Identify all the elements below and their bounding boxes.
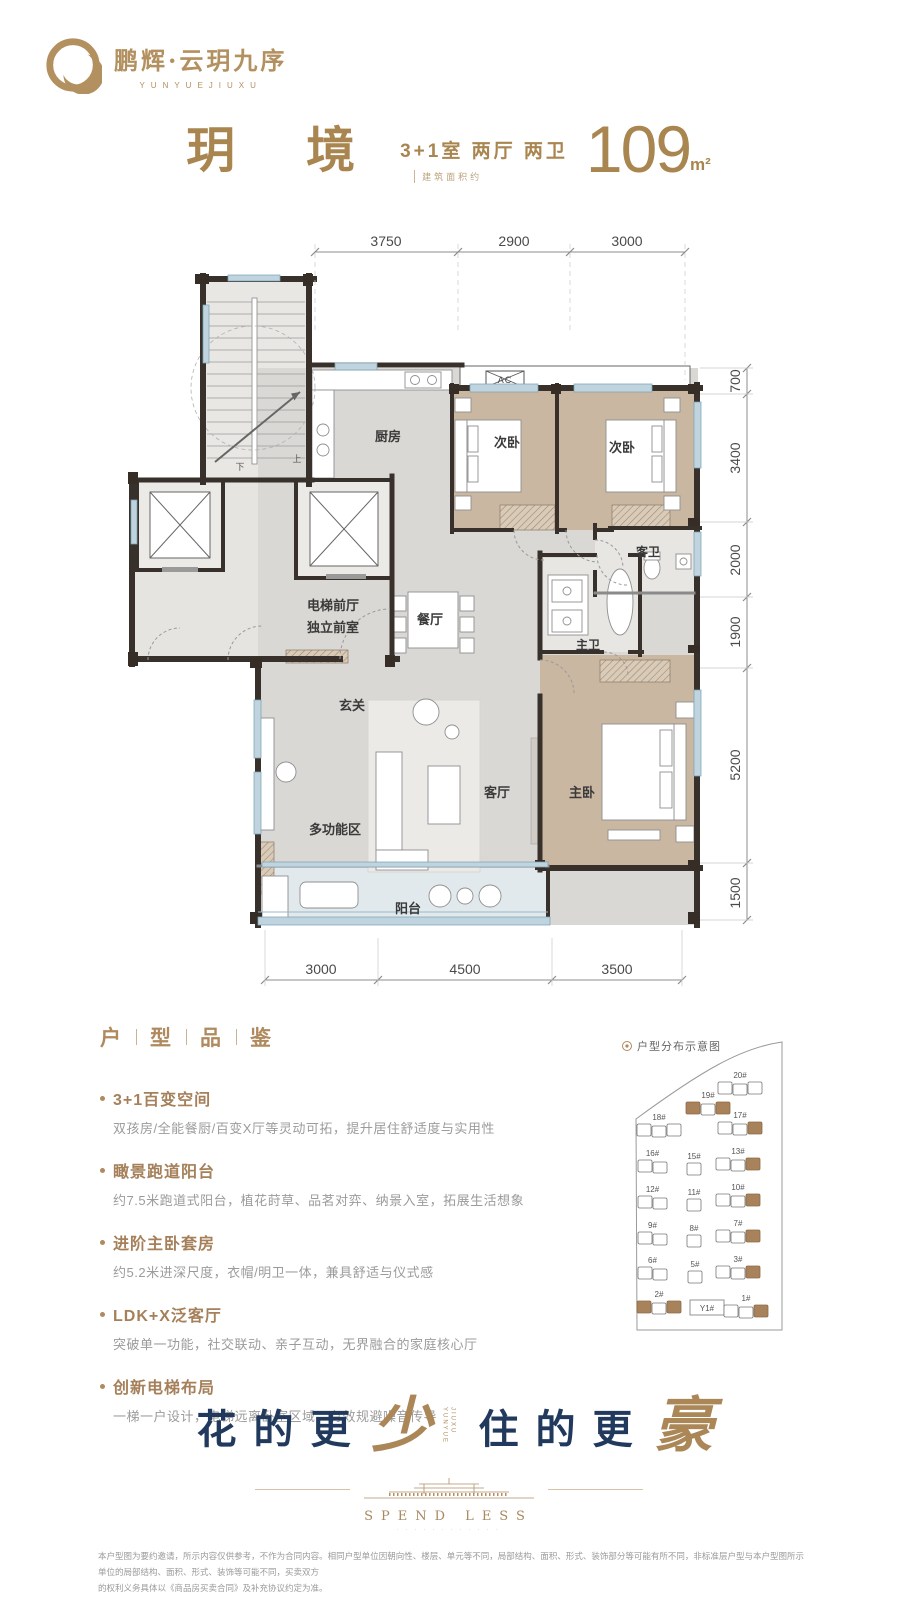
siteplan-building: 11# [687,1188,701,1211]
bullet-dot-icon [100,1384,105,1389]
unit-area: 109 m² [586,120,711,179]
room-label-dining: 餐厅 [416,612,443,627]
siteplan-building: 15# [687,1152,701,1175]
ac-label: AC [498,375,513,385]
disclaimer: 本户型图为要约邀请，所示内容仅供参考，不作为合同内容。相同户型单位因朝向性、楼层… [98,1548,804,1596]
room-label-elevator-hall-1: 电梯前厅 [307,598,359,613]
room-label-multifunction: 多功能区 [309,822,361,837]
bullet-dot-icon [100,1240,105,1245]
building-label: 13# [731,1147,745,1156]
sp-title-char-2: 型 [150,1022,173,1052]
selling-point-item: 进阶主卧套房约5.2米进深尺度，衣帽/明卫一体，兼具舒适与仪式感 [100,1230,605,1281]
room-label-kitchen: 厨房 [375,429,401,444]
deco-line-right [548,1489,643,1490]
siteplan-legend-label: 户型分布示意图 [637,1039,721,1053]
building-label: Y1# [700,1304,715,1313]
brand-name: 鹏辉·云玥九序 [114,41,287,76]
slogan-en-sub: · · · · · · · · · · · · [396,1527,500,1533]
unit-title: 玥 境 [186,124,382,178]
building-label: 10# [731,1183,745,1192]
dim-right-5: 5200 [727,749,743,780]
building-label: 18# [652,1113,666,1122]
slogan-section: 花的更 少 YUNYUE JIUXU 住的更 豪 SPEND LESS · · … [0,1396,897,1533]
slogan-decoration [255,1476,643,1502]
dim-top-3: 3000 [611,233,642,249]
sp-title-char-4: 鉴 [250,1022,273,1052]
selling-point-head: 创新电梯布局 [100,1374,605,1398]
sp-title-divider [236,1029,237,1045]
selling-point-head: 瞰景跑道阳台 [100,1158,605,1182]
slogan-vertical-line1: YUNYUE [442,1407,448,1444]
brand-logo: 鹏辉·云玥九序 YUNYUEJIUXU [44,36,287,94]
dim-right-2: 3400 [727,442,743,473]
unit-area-note: 建筑面积约 [414,170,568,183]
building-label: 7# [734,1219,743,1228]
brand-name-en: YUNYUEJIUXU [139,81,261,90]
stair-up-label: 上 [292,454,301,464]
sp-title-divider [186,1029,187,1045]
sp-title-divider [136,1029,137,1045]
dim-right-4: 1900 [727,616,743,647]
sp-title-char-3: 品 [200,1022,223,1052]
slogan-left: 花的更 [180,1397,368,1455]
siteplan-legend-icon [625,1044,628,1047]
building-label: 8# [690,1224,699,1233]
dim-bottom-1: 3000 [305,961,336,977]
building-label: 15# [687,1152,701,1161]
room-label-living: 客厅 [484,785,510,800]
selling-points-section: 户 型 品 鉴 3+1百变空间双孩房/全能餐厨/百变X厅等灵动可拓，提升居住舒适… [100,1022,605,1446]
room-label-elevator-hall-2: 独立前室 [307,620,359,635]
slogan-vertical-line2: JIUXU [450,1407,456,1444]
slogan-right: 住的更 [462,1397,650,1455]
building-label: 19# [701,1091,715,1100]
building-label: 12# [646,1185,660,1194]
building-label: 16# [646,1149,660,1158]
building-label: 9# [648,1221,657,1230]
slogan-accent-left: 少 [368,1396,436,1456]
selling-point-title: 进阶主卧套房 [113,1230,215,1254]
slogan-vertical-text: YUNYUE JIUXU [442,1407,456,1444]
stair-down-label: 下 [235,462,244,472]
building-label: 11# [688,1188,701,1197]
building-label: 20# [733,1071,747,1080]
selling-point-desc: 双孩房/全能餐厨/百变X厅等灵动可拓，提升居住舒适度与实用性 [113,1118,605,1137]
dim-top-2: 2900 [498,233,529,249]
unit-header: 玥 境 3+1室 两厅 两卫 建筑面积约 109 m² [0,124,897,183]
selling-point-head: LDK+X泛客厅 [100,1302,605,1326]
dim-top-1: 3750 [370,233,401,249]
unit-layout-spec: 3+1室 两厅 两卫 [400,136,568,163]
building-label: 2# [655,1290,664,1299]
siteplan: 户型分布示意图 20#19#18#17#16#15#13#12#11#10#9#… [623,1039,783,1330]
unit-area-unit: m² [690,155,711,175]
selling-points-title: 户 型 品 鉴 [100,1022,605,1052]
slogan-accent-right: 豪 [650,1396,718,1456]
slogan-en: SPEND LESS [364,1509,533,1524]
room-label-foyer: 玄关 [339,698,365,713]
selling-point-title: LDK+X泛客厅 [113,1302,222,1326]
dim-right-1: 700 [727,369,743,393]
disclaimer-line2: 的权利义务具体以《商品房买卖合同》及补充协议约定为准。 [98,1583,328,1593]
bullet-dot-icon [100,1312,105,1317]
room-label-balcony: 阳台 [395,901,421,916]
bullet-dot-icon [100,1168,105,1173]
dim-bottom-2: 4500 [449,961,480,977]
building-label: 1# [742,1294,751,1303]
disclaimer-line1: 本户型图为要约邀请，所示内容仅供参考，不作为合同内容。相同户型单位因朝向性、楼层… [98,1551,804,1577]
siteplan-building: Y1# [690,1300,724,1315]
building-silhouette-icon [364,1476,534,1502]
bullet-dot-icon [100,1096,105,1101]
selling-point-title: 3+1百变空间 [113,1086,211,1110]
deco-line-left [255,1489,350,1490]
building-label: 17# [733,1111,747,1120]
dim-bottom-3: 3500 [601,961,632,977]
selling-point-item: LDK+X泛客厅突破单一功能，社交联动、亲子互动，无界融合的家庭核心厅 [100,1302,605,1353]
selling-point-head: 3+1百变空间 [100,1086,605,1110]
selling-point-item: 瞰景跑道阳台约7.5米跑道式阳台，植花莳草、品茗对弈、纳景入室，拓展生活想象 [100,1158,605,1209]
room-label-master-bath: 主卫 [576,637,600,652]
dim-right-6: 1500 [727,877,743,908]
room-label-master-bedroom: 主卧 [569,785,595,800]
selling-point-desc: 约7.5米跑道式阳台，植花莳草、品茗对弈、纳景入室，拓展生活想象 [113,1190,605,1209]
selling-point-item: 3+1百变空间双孩房/全能餐厨/百变X厅等灵动可拓，提升居住舒适度与实用性 [100,1086,605,1137]
building-label: 3# [734,1255,743,1264]
selling-point-title: 瞰景跑道阳台 [113,1158,215,1182]
building-label: 5# [691,1260,700,1269]
room-label-guest-bath: 客卫 [635,544,660,559]
selling-point-title: 创新电梯布局 [113,1374,215,1398]
sp-title-char-1: 户 [100,1022,123,1052]
room-label-bedroom2-left: 次卧 [494,435,520,450]
dim-right-3: 2000 [727,544,743,575]
unit-area-value: 109 [586,120,690,179]
room-label-bedroom2-right: 次卧 [609,440,635,455]
brand-logo-icon [44,36,102,94]
selling-point-head: 进阶主卧套房 [100,1230,605,1254]
building-label: 6# [648,1256,657,1265]
selling-point-desc: 突破单一功能，社交联动、亲子互动，无界融合的家庭核心厅 [113,1334,605,1353]
selling-point-desc: 约5.2米进深尺度，衣帽/明卫一体，兼具舒适与仪式感 [113,1262,605,1281]
